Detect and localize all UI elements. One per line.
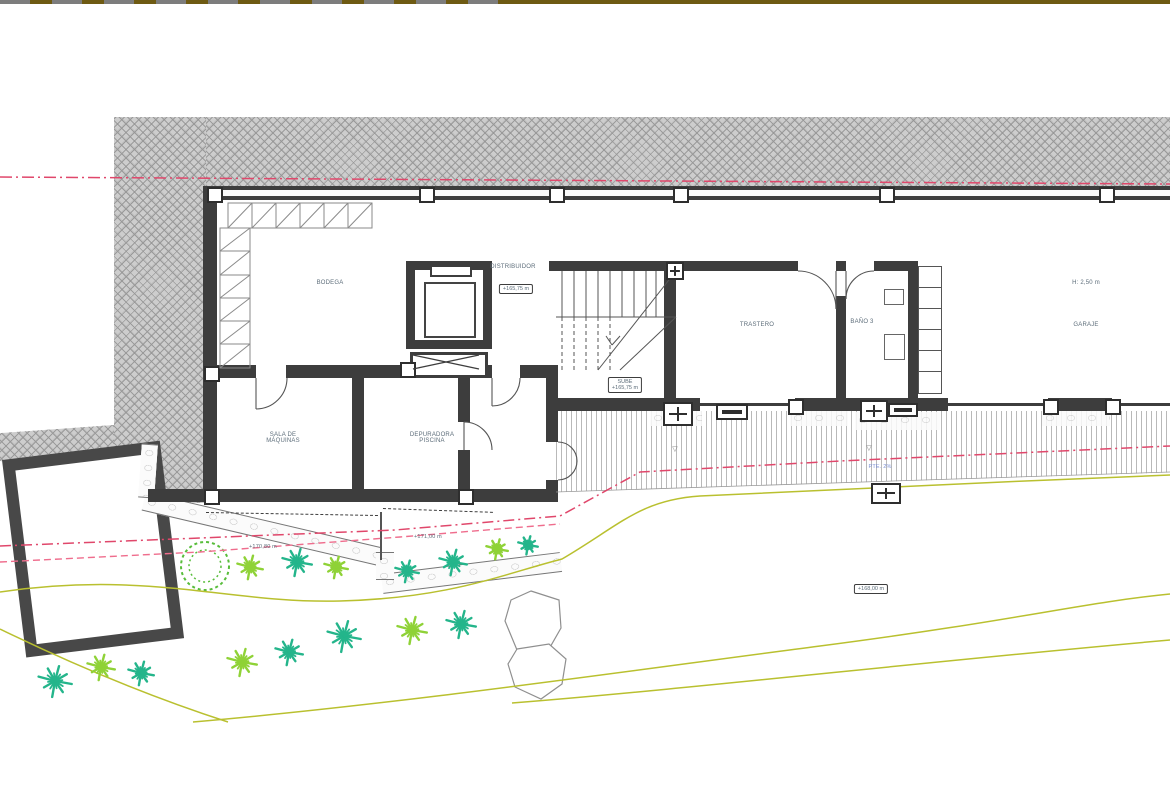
column-marker [673, 187, 689, 203]
column-marker [419, 187, 435, 203]
column-marker [204, 366, 220, 382]
room-label-bodega: BODEGA [317, 280, 344, 286]
window-top-bar-segments [0, 0, 515, 4]
sink-fixture [884, 289, 904, 305]
tree-circle [181, 542, 229, 590]
rack-shelving [220, 203, 372, 368]
level-marker-stairs: SUBE +165,75 m [608, 377, 642, 393]
wall-depuradora-right [458, 450, 470, 489]
terrain-hatch-band [114, 117, 1170, 187]
room-label-garaje: GARAJE [1073, 322, 1098, 328]
stone-wall-a [142, 492, 382, 566]
column-marker-plus [663, 402, 693, 426]
room-label-bano: BAÑO 3 [850, 319, 873, 325]
closet-cell [918, 308, 942, 331]
wall-stairs-top [549, 261, 680, 271]
wall-stairs-right [664, 261, 676, 410]
wall-trastero-bano-divider [836, 296, 846, 410]
wall-trastero-top [680, 261, 798, 271]
floor-plan: ▽ ▽ [0, 0, 1170, 785]
room-label-sala: SALA DE MÁQUINAS [266, 432, 300, 444]
wall-sala-divider [352, 378, 364, 489]
label-garaje-height: H: 2,50 m [1072, 280, 1100, 286]
level-marker-distribuidor: +165,75 m [499, 284, 533, 294]
closet-cell [918, 350, 942, 373]
wall-bodega-bottom [520, 365, 558, 378]
pool-structure [2, 441, 184, 658]
column-marker [549, 187, 565, 203]
stairs [556, 271, 676, 370]
column-marker [400, 362, 416, 378]
column-marker [1043, 399, 1059, 415]
elevator-car [424, 282, 476, 338]
stone-wall-d [376, 552, 394, 580]
window [948, 398, 1048, 411]
vent-marker [888, 403, 918, 417]
column-marker [879, 187, 895, 203]
closet-cell [918, 266, 942, 289]
wall-depuradora-right [458, 378, 470, 422]
closet-cell [918, 329, 942, 352]
stairs-note-line2: +165,75 m [612, 385, 638, 391]
level-triangle: ▽ [866, 444, 871, 452]
wall-corridor-right [546, 480, 558, 489]
wall-trastero-top [836, 261, 846, 271]
column-marker-plus [666, 262, 684, 280]
room-label-depuradora: DEPURADORA PISCINA [410, 432, 454, 444]
wall-left [203, 186, 217, 502]
drain-marker-plus [871, 483, 901, 504]
room-label-trastero: TRASTERO [740, 322, 774, 328]
column-marker [1099, 187, 1115, 203]
level-planter1: +170,80 m [249, 544, 277, 550]
column-marker [1105, 399, 1121, 415]
level-planter2: +171,00 m [414, 534, 442, 540]
column-marker [204, 489, 220, 505]
column-marker [458, 489, 474, 505]
elevator-pit [410, 352, 488, 378]
wall-garage-left [908, 261, 918, 410]
slope-note: PTE. 2% [868, 464, 891, 470]
stone-wall-b [381, 552, 562, 594]
toilet-fixture [884, 334, 905, 360]
room-label-distribuidor: DISTRIBUIDOR [490, 264, 535, 270]
planter-divider [380, 512, 382, 560]
closet-cell [918, 371, 942, 394]
vent-marker [716, 404, 748, 420]
level-triangle: ▽ [672, 445, 677, 453]
planter2-edge [383, 508, 493, 513]
closet-cell [918, 287, 942, 310]
column-marker-plus [860, 400, 888, 422]
rocks [505, 591, 566, 699]
level-marker-terrain: +168,00 m [854, 584, 888, 594]
column-marker [788, 399, 804, 415]
elevator-door [430, 265, 472, 277]
column-marker [207, 187, 223, 203]
